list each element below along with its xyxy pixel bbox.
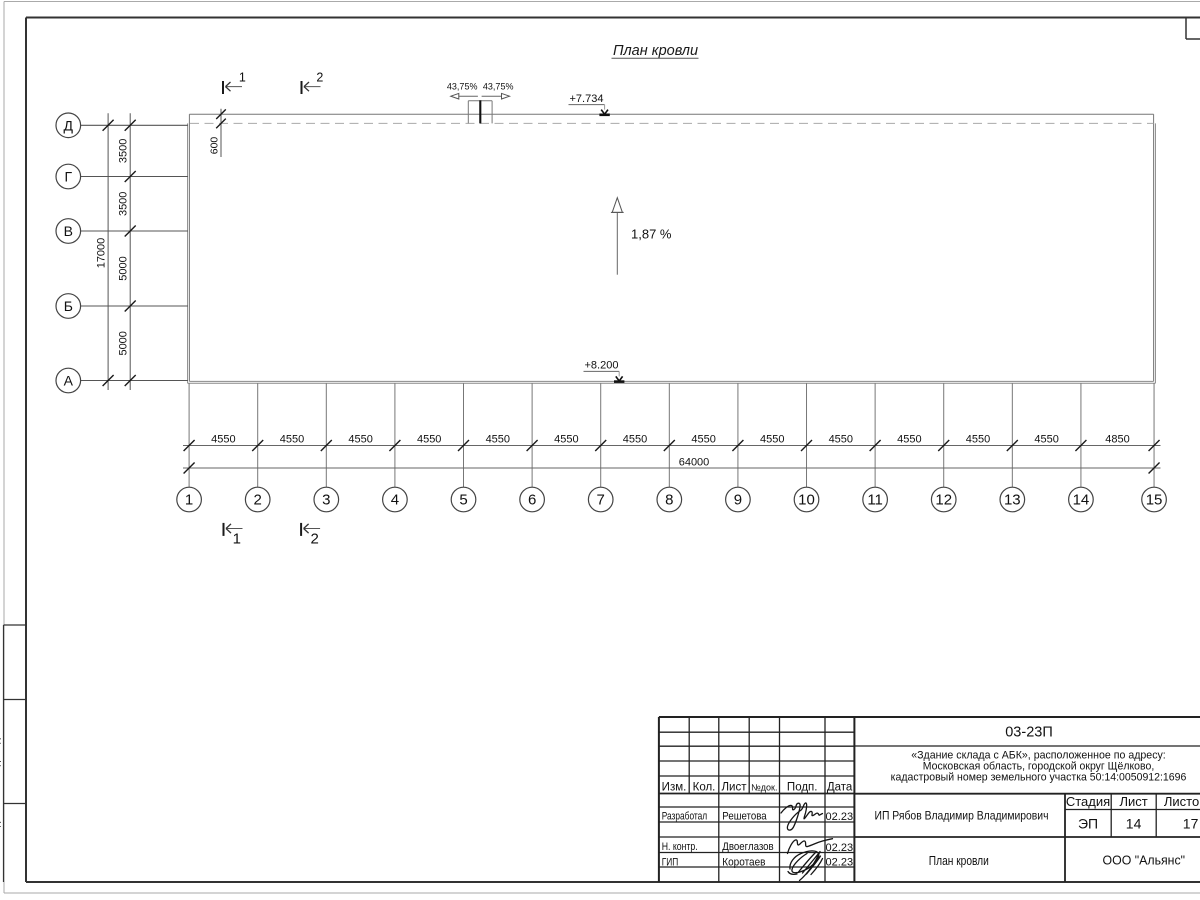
svg-text:Подп. и дата: Подп. и дата <box>0 724 1 777</box>
svg-text:А: А <box>64 373 74 389</box>
svg-text:Стадия: Стадия <box>1066 794 1110 809</box>
svg-text:Листов: Листов <box>1164 794 1200 809</box>
svg-text:14: 14 <box>1073 492 1090 509</box>
svg-text:Г: Г <box>65 169 73 185</box>
svg-text:ИП Рябов Владимир Владимирович: ИП Рябов Владимир Владимирович <box>875 809 1049 823</box>
svg-text:Разработал: Разработал <box>662 810 708 822</box>
svg-text:4550: 4550 <box>554 433 578 445</box>
svg-text:5000: 5000 <box>117 256 129 280</box>
svg-text:7: 7 <box>597 492 605 509</box>
svg-text:ЭП: ЭП <box>1078 815 1098 831</box>
svg-text:Кол.: Кол. <box>693 782 716 794</box>
svg-text:4550: 4550 <box>280 433 304 445</box>
svg-text:11: 11 <box>867 492 883 509</box>
svg-text:Лист: Лист <box>1119 794 1147 809</box>
svg-text:12: 12 <box>935 492 952 509</box>
svg-text:5: 5 <box>459 492 467 509</box>
svg-text:4550: 4550 <box>760 433 784 445</box>
svg-text:4550: 4550 <box>1034 433 1058 445</box>
svg-text:2: 2 <box>316 71 323 85</box>
svg-text:4850: 4850 <box>1105 433 1129 445</box>
svg-text:5000: 5000 <box>117 331 129 355</box>
svg-text:ГИП: ГИП <box>662 856 679 868</box>
svg-text:Дата: Дата <box>827 782 853 794</box>
svg-text:64000: 64000 <box>679 456 710 468</box>
svg-text:4550: 4550 <box>623 433 647 445</box>
svg-text:ООО "Альянс": ООО "Альянс" <box>1103 852 1186 867</box>
svg-text:4550: 4550 <box>417 433 441 445</box>
svg-text:600: 600 <box>209 137 221 155</box>
svg-text:Взам. инв. №: Взам. инв. № <box>0 634 1 690</box>
svg-text:4550: 4550 <box>897 433 921 445</box>
svg-text:3: 3 <box>322 492 330 509</box>
svg-text:Д: Д <box>64 117 74 133</box>
svg-text:8: 8 <box>665 492 673 509</box>
svg-text:2: 2 <box>254 492 262 509</box>
svg-text:кадастровый номер земельного у: кадастровый номер земельного участка 50:… <box>891 771 1187 783</box>
svg-text:15: 15 <box>1146 492 1163 509</box>
svg-text:43,75%: 43,75% <box>447 81 478 91</box>
svg-text:13: 13 <box>1004 492 1021 509</box>
svg-text:14: 14 <box>1126 815 1142 831</box>
svg-text:Подп.: Подп. <box>787 782 818 794</box>
svg-text:План кровли: План кровли <box>613 43 698 59</box>
svg-text:17000: 17000 <box>95 238 107 269</box>
svg-text:1: 1 <box>233 531 241 548</box>
svg-text:1: 1 <box>239 71 246 85</box>
svg-text:02.23: 02.23 <box>826 842 854 854</box>
svg-text:17: 17 <box>1183 815 1199 831</box>
svg-text:4550: 4550 <box>486 433 510 445</box>
svg-text:4550: 4550 <box>829 433 853 445</box>
svg-text:9: 9 <box>734 492 742 509</box>
svg-text:Инв. № подл.: Инв. № подл. <box>0 814 1 870</box>
svg-text:Б: Б <box>64 298 73 314</box>
svg-text:Коротаев: Коротаев <box>722 856 765 868</box>
svg-text:2: 2 <box>311 531 319 548</box>
svg-text:№док.: №док. <box>751 783 777 793</box>
svg-text:43,75%: 43,75% <box>483 81 514 91</box>
svg-text:4550: 4550 <box>211 433 235 445</box>
svg-text:4: 4 <box>391 492 399 509</box>
svg-text:4550: 4550 <box>966 433 990 445</box>
svg-text:Двоеглазов: Двоеглазов <box>722 841 774 853</box>
svg-text:План кровли: План кровли <box>929 854 989 868</box>
svg-text:10: 10 <box>798 492 815 509</box>
svg-text:Лист: Лист <box>722 782 748 794</box>
svg-text:02.23: 02.23 <box>826 857 854 869</box>
svg-text:Решетова: Решетова <box>722 810 767 822</box>
svg-text:3500: 3500 <box>117 139 129 163</box>
svg-text:03-23П: 03-23П <box>1005 725 1053 741</box>
svg-text:Н. контр.: Н. контр. <box>662 841 698 853</box>
svg-text:+7.734: +7.734 <box>570 93 604 105</box>
svg-text:+8.200: +8.200 <box>585 360 619 372</box>
svg-text:4550: 4550 <box>691 433 715 445</box>
svg-text:В: В <box>64 223 73 239</box>
svg-text:1,87 %: 1,87 % <box>631 227 672 242</box>
svg-text:1: 1 <box>185 492 193 509</box>
svg-text:6: 6 <box>528 492 536 509</box>
svg-text:Изм.: Изм. <box>662 782 687 794</box>
svg-text:02.23: 02.23 <box>826 811 854 823</box>
svg-text:3500: 3500 <box>117 192 129 216</box>
svg-text:4550: 4550 <box>348 433 372 445</box>
